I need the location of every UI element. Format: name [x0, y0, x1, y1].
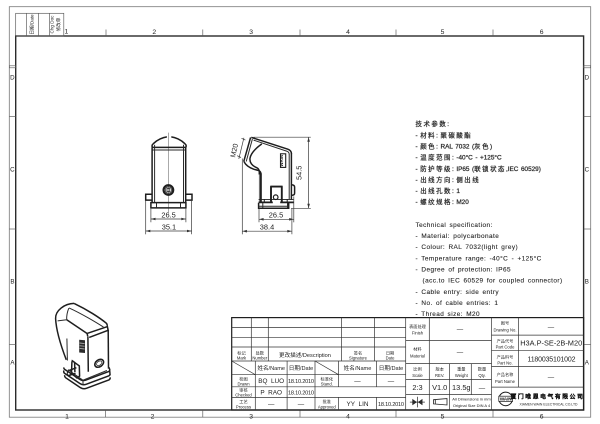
- svg-text:D: D: [585, 75, 590, 82]
- svg-text:Drawing No.: Drawing No.: [493, 328, 516, 333]
- svg-text:Part Code: Part Code: [496, 345, 516, 350]
- svg-text:3: 3: [249, 414, 253, 421]
- svg-text:数量: 数量: [478, 365, 486, 372]
- svg-text:材料: 材料: [413, 346, 422, 353]
- svg-text:Process: Process: [236, 404, 251, 409]
- svg-text:比例: 比例: [413, 365, 421, 372]
- svg-text:—: —: [268, 401, 275, 408]
- svg-text:13.5g: 13.5g: [452, 383, 471, 392]
- svg-text:Weight: Weight: [455, 373, 469, 378]
- svg-text:- Temperature range: -40°C - +: - Temperature range: -40°C - +125°C: [416, 254, 542, 262]
- svg-text:18.10.2010: 18.10.2010: [378, 402, 404, 408]
- svg-text:All Dimensions in mm: All Dimensions in mm: [452, 397, 491, 402]
- svg-text:1: 1: [65, 414, 69, 421]
- svg-text:D: D: [10, 75, 15, 82]
- svg-text:- 螺纹规格: M20: - 螺纹规格: M20: [416, 197, 470, 206]
- svg-text:Part No.: Part No.: [497, 361, 512, 366]
- svg-text:版本: 版本: [436, 365, 445, 372]
- svg-text:2: 2: [151, 414, 155, 421]
- svg-text:38.4: 38.4: [260, 222, 274, 231]
- svg-text:—: —: [298, 401, 305, 408]
- svg-text:—: —: [457, 349, 464, 356]
- svg-text:—: —: [388, 378, 395, 385]
- svg-text:6: 6: [540, 414, 544, 421]
- svg-text:Technical specification:: Technical specification:: [416, 222, 493, 229]
- svg-text:2:3: 2:3: [412, 383, 422, 392]
- svg-text:Qty.: Qty.: [478, 373, 485, 378]
- svg-text:1: 1: [65, 29, 69, 36]
- svg-text:Number: Number: [252, 356, 267, 361]
- svg-text:P RAO: P RAO: [260, 390, 282, 397]
- svg-text:4: 4: [346, 414, 350, 421]
- svg-text:—: —: [548, 324, 555, 331]
- svg-text:厦门唯恩电气有限公司: 厦门唯恩电气有限公司: [511, 393, 585, 401]
- svg-text:姓名/Name: 姓名/Name: [257, 364, 285, 372]
- svg-text:- 防护等级: IP65 (联锁状态,IEC 60529): - 防护等级: IP65 (联锁状态,IEC 60529): [416, 164, 541, 173]
- svg-text:表面处理: 表面处理: [409, 323, 427, 330]
- svg-text:26.5: 26.5: [269, 211, 283, 220]
- svg-text:- 出线方向: 侧出线: - 出线方向: 侧出线: [416, 175, 481, 184]
- svg-text:H3A.P-SE-2B-M20: H3A.P-SE-2B-M20: [520, 339, 582, 348]
- svg-text:- 材料: 聚碳酸酯: - 材料: 聚碳酸酯: [416, 130, 473, 139]
- svg-text:35.1: 35.1: [162, 222, 176, 231]
- svg-text:- Material: polycarbonate: - Material: polycarbonate: [416, 233, 500, 240]
- svg-text:更改描述/Description: 更改描述/Description: [279, 351, 331, 359]
- svg-text:Signature: Signature: [349, 356, 368, 361]
- svg-text:Part Name: Part Name: [495, 379, 516, 384]
- svg-text:WAIN: WAIN: [279, 155, 284, 167]
- svg-text:- 颜色: RAL 7032 (灰色): - 颜色: RAL 7032 (灰色): [416, 142, 493, 151]
- svg-text:YY LIN: YY LIN: [346, 401, 368, 408]
- svg-text:Mark: Mark: [237, 356, 247, 361]
- svg-text:5: 5: [441, 414, 445, 421]
- svg-text:Checked: Checked: [235, 392, 252, 397]
- svg-text:- Degree of protection: IP65: - Degree of protection: IP65: [416, 267, 512, 274]
- svg-text:18.10.2010: 18.10.2010: [288, 379, 314, 385]
- svg-text:Finish: Finish: [412, 331, 424, 336]
- svg-text:6: 6: [540, 29, 544, 36]
- svg-text:重量: 重量: [457, 365, 465, 372]
- svg-text:26.5: 26.5: [161, 210, 175, 219]
- svg-text:修改单: 修改单: [55, 17, 62, 31]
- svg-text:XIAMEN WAIN ELECTRICAL CO.LTD: XIAMEN WAIN ELECTRICAL CO.LTD: [520, 402, 579, 406]
- svg-text:18.10.2010: 18.10.2010: [288, 391, 314, 397]
- svg-text:C: C: [10, 167, 15, 174]
- svg-text:Approved: Approved: [318, 404, 337, 409]
- svg-text:REV.: REV.: [435, 373, 444, 378]
- svg-text:日期/Date: 日期/Date: [379, 365, 404, 372]
- svg-text:产品料号: 产品料号: [497, 354, 514, 361]
- svg-text:C: C: [585, 167, 590, 174]
- svg-text:54.5: 54.5: [295, 166, 304, 180]
- svg-text:BQ LUO: BQ LUO: [258, 378, 284, 385]
- svg-text:产品名称: 产品名称: [497, 371, 514, 378]
- svg-text:- 温度范围: -40°C - +125°C: - 温度范围: -40°C - +125°C: [416, 153, 502, 162]
- svg-text:5: 5: [441, 29, 445, 36]
- svg-text:姓名/Name: 姓名/Name: [344, 364, 372, 372]
- svg-text:- 出线孔数: 1: - 出线孔数: 1: [416, 186, 461, 195]
- svg-text:—: —: [479, 385, 486, 392]
- svg-text:4: 4: [346, 29, 350, 36]
- svg-text:- Colour: RAL 7032(light grey): - Colour: RAL 7032(light grey): [416, 244, 519, 251]
- svg-text:Stand.: Stand.: [321, 382, 333, 387]
- svg-text:2: 2: [152, 29, 156, 36]
- svg-text:B: B: [585, 279, 589, 286]
- svg-text:V1.0: V1.0: [432, 383, 447, 392]
- svg-text:- No. of cable entries: 1: - No. of cable entries: 1: [416, 300, 499, 307]
- svg-text:Original Size DIN A 4: Original Size DIN A 4: [453, 403, 491, 408]
- svg-text:日期/Date: 日期/Date: [289, 365, 314, 372]
- svg-text:技术参数:: 技术参数:: [416, 119, 450, 128]
- svg-text:1180035101002: 1180035101002: [528, 356, 576, 363]
- svg-text:Date: Date: [386, 356, 396, 361]
- svg-text:—: —: [457, 327, 464, 334]
- svg-text:—: —: [548, 375, 555, 382]
- svg-text:(acc.to IEC 60529 for coupled: (acc.to IEC 60529 for coupled connector): [423, 278, 563, 285]
- svg-text:- Cable entry: side entry: - Cable entry: side entry: [416, 289, 500, 296]
- svg-text:3: 3: [249, 29, 253, 36]
- svg-text:Drawn: Drawn: [237, 382, 250, 387]
- svg-text:产品代号: 产品代号: [497, 338, 514, 345]
- svg-text:B: B: [10, 279, 14, 286]
- svg-text:—: —: [354, 378, 361, 385]
- svg-text:Material: Material: [410, 354, 425, 359]
- svg-text:Chg Doc: Chg Doc: [50, 15, 55, 34]
- svg-text:Scale: Scale: [412, 373, 423, 378]
